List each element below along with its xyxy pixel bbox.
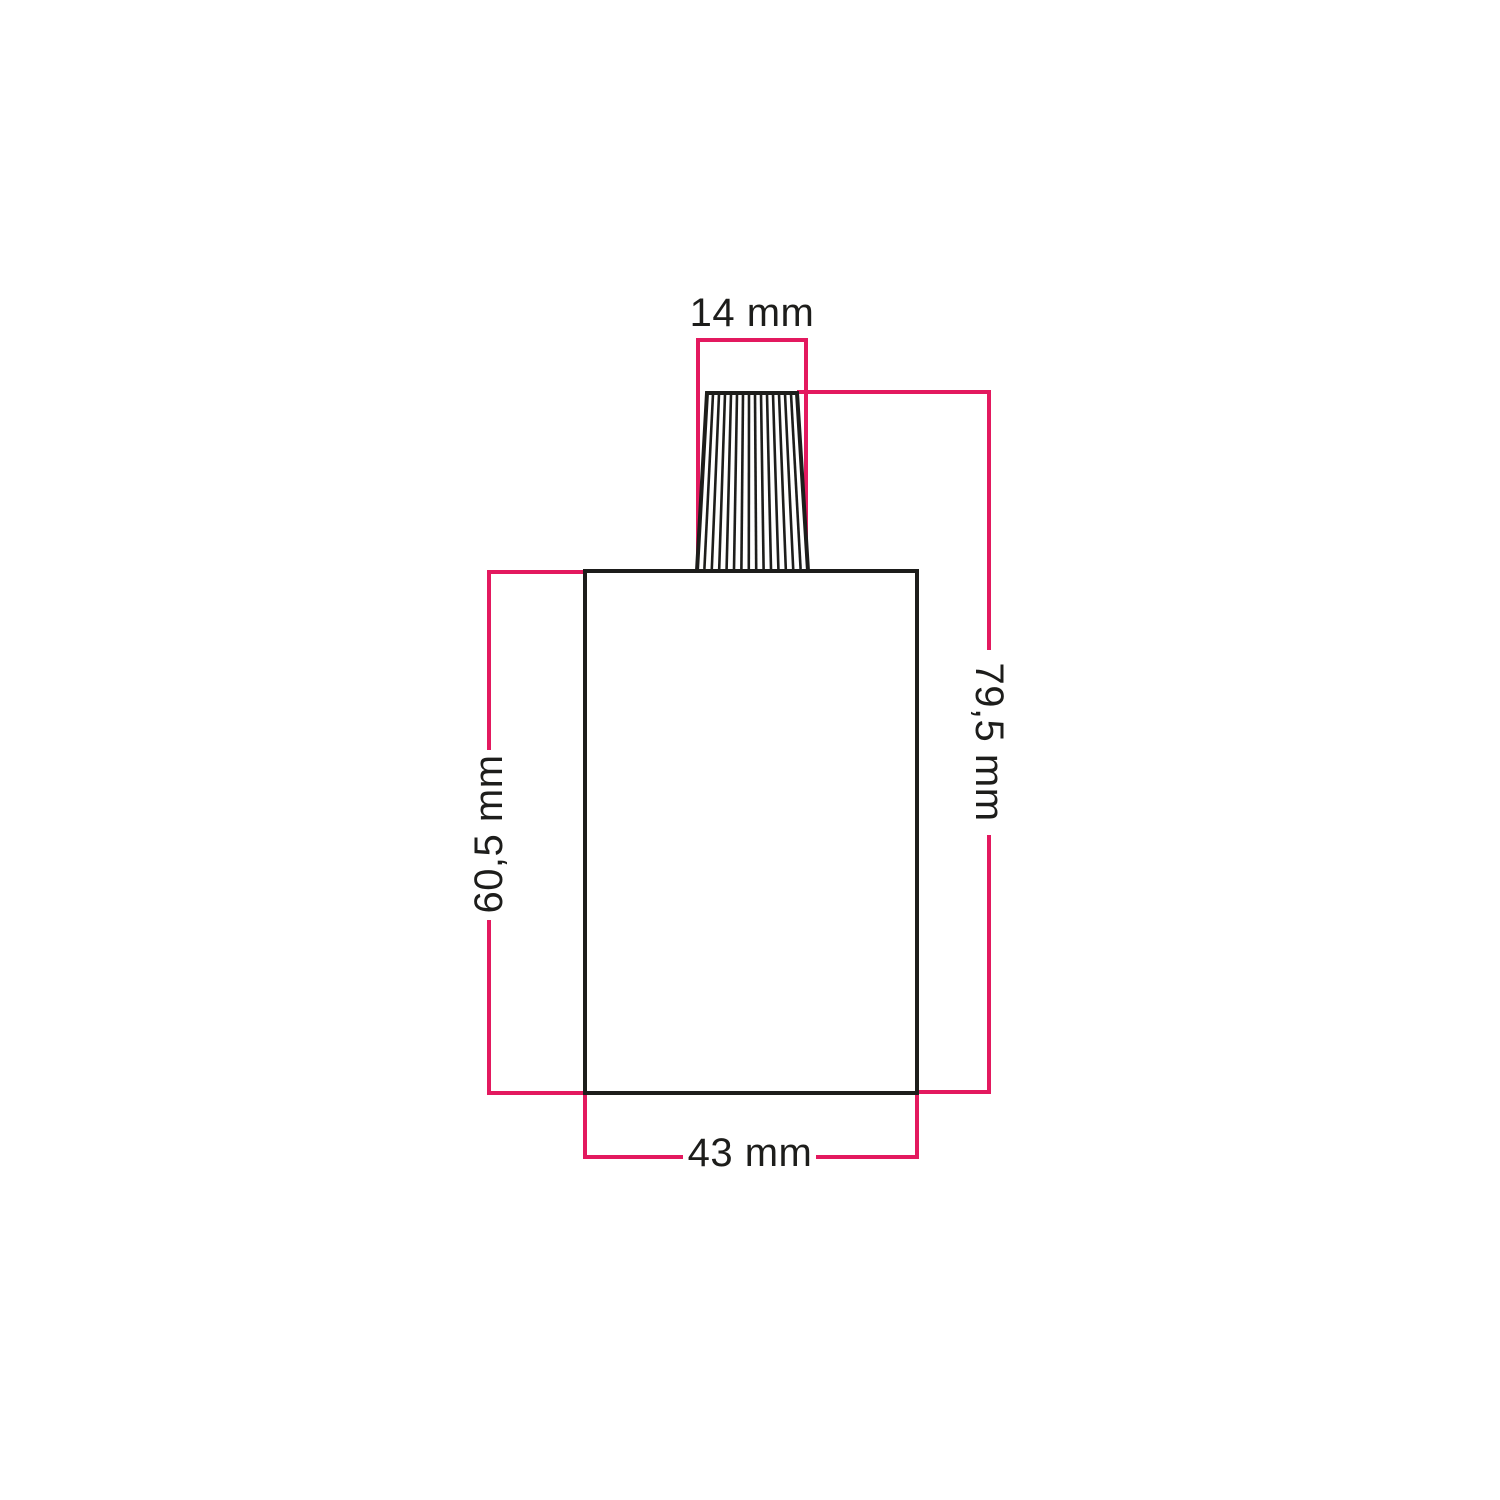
- technical-drawing-canvas: 14 mm 79,5 mm 60,5 mm 43 mm: [0, 0, 1500, 1500]
- dimension-line-overall-height-lower: [917, 835, 989, 1092]
- dimension-label-cable-grip-top-width: 14 mm: [652, 293, 852, 333]
- dimension-drawing: [0, 0, 1500, 1500]
- dimension-line-body-height-upper: [489, 572, 585, 750]
- dimension-line-body-height-lower: [489, 920, 585, 1093]
- dimension-label-overall-height: 79,5 mm: [969, 662, 1009, 821]
- dimension-label-body-width: 43 mm: [650, 1133, 850, 1173]
- body-outline: [585, 571, 917, 1093]
- dimension-label-body-height: 60,5 mm: [469, 754, 509, 913]
- product-outline-group: [585, 393, 917, 1093]
